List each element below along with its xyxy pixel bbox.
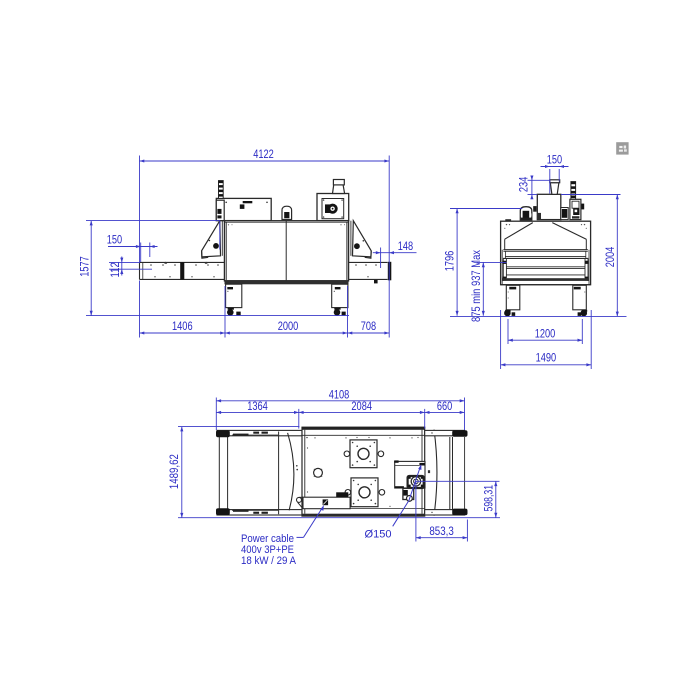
svg-text:598,31: 598,31 (481, 485, 495, 512)
svg-text:18 kW / 29 A: 18 kW / 29 A (241, 555, 297, 567)
svg-text:400v 3P+PE: 400v 3P+PE (241, 544, 294, 556)
svg-text:234: 234 (517, 176, 531, 192)
svg-text:1577: 1577 (78, 256, 92, 277)
svg-text:1490: 1490 (536, 351, 557, 365)
svg-text:2000: 2000 (278, 319, 299, 333)
svg-text:2084: 2084 (351, 399, 372, 413)
svg-text:1406: 1406 (172, 319, 193, 333)
svg-text:853,3: 853,3 (429, 524, 454, 538)
svg-text:1796: 1796 (442, 250, 456, 271)
svg-text:112: 112 (108, 262, 122, 278)
svg-text:1489,62: 1489,62 (167, 454, 181, 489)
svg-text:Power cable: Power cable (241, 533, 294, 545)
svg-text:1200: 1200 (535, 327, 556, 341)
svg-text:875 min 937 Max: 875 min 937 Max (469, 250, 483, 322)
svg-text:150: 150 (107, 232, 123, 246)
svg-text:1364: 1364 (247, 399, 268, 413)
svg-text:150: 150 (547, 152, 563, 166)
svg-text:2004: 2004 (603, 246, 617, 267)
svg-text:148: 148 (398, 239, 414, 253)
svg-text:4122: 4122 (253, 147, 274, 161)
svg-text:4108: 4108 (329, 387, 350, 401)
svg-text:Ø150: Ø150 (365, 529, 392, 541)
svg-text:660: 660 (437, 399, 453, 413)
svg-text:708: 708 (361, 319, 377, 333)
